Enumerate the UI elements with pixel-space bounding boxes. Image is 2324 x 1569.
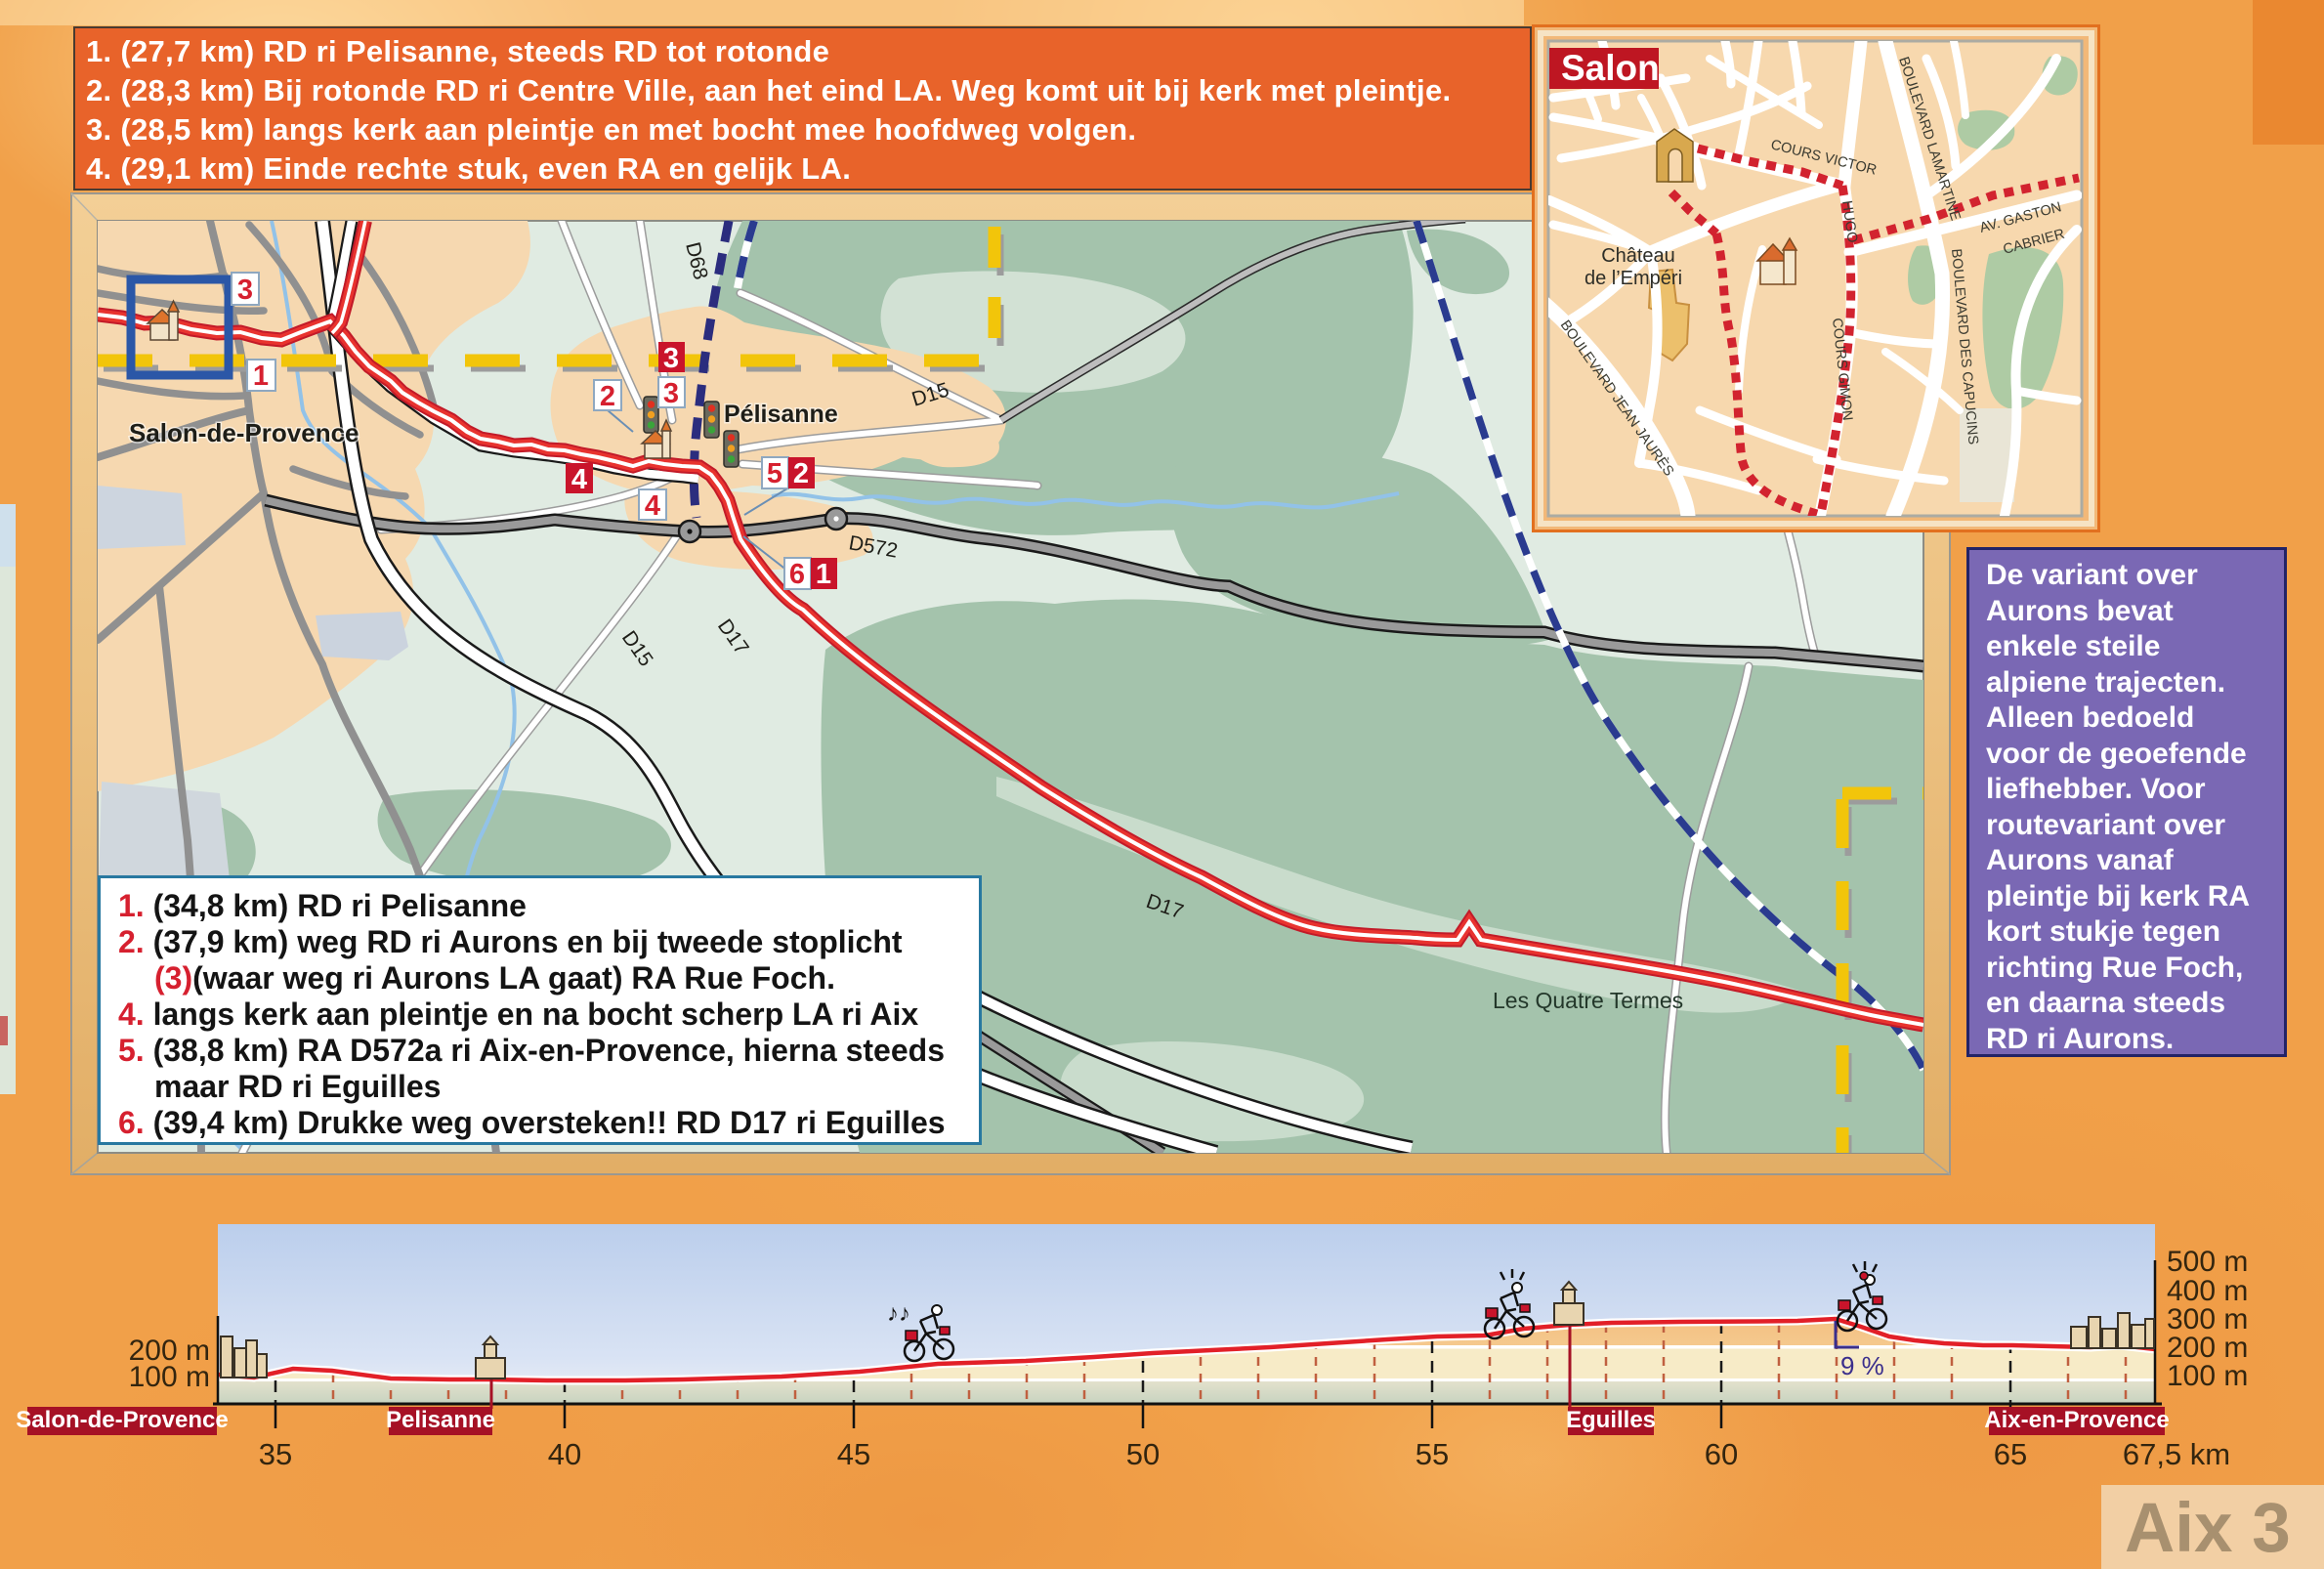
svg-text:de l’Empéri: de l’Empéri	[1585, 268, 1682, 289]
svg-text:Aix-en-Provence: Aix-en-Provence	[1984, 1407, 2169, 1433]
svg-text:Salon: Salon	[1561, 48, 1660, 88]
svg-text:500 m: 500 m	[2167, 1246, 2248, 1278]
svg-text:Salon-de-Provence: Salon-de-Provence	[16, 1407, 228, 1433]
svg-text:45: 45	[837, 1437, 870, 1471]
svg-text:67,5 km: 67,5 km	[2123, 1437, 2230, 1471]
svg-text:50: 50	[1126, 1437, 1160, 1471]
svg-text:40: 40	[548, 1437, 581, 1471]
svg-text:♪♪: ♪♪	[887, 1300, 910, 1327]
svg-text:1: 1	[816, 559, 831, 590]
svg-text:5: 5	[767, 458, 782, 489]
svg-text:9 %: 9 %	[1840, 1351, 1884, 1380]
svg-text:Pélisanne: Pélisanne	[724, 401, 838, 428]
svg-text:3: 3	[663, 378, 679, 409]
svg-text:4: 4	[645, 490, 660, 522]
svg-text:35: 35	[259, 1437, 292, 1471]
svg-text:1: 1	[253, 360, 269, 392]
svg-text:Eguilles: Eguilles	[1566, 1407, 1656, 1433]
svg-text:Château: Château	[1601, 245, 1675, 267]
svg-text:60: 60	[1705, 1437, 1738, 1471]
svg-text:Salon-de-Provence: Salon-de-Provence	[129, 418, 359, 447]
svg-text:2: 2	[600, 381, 615, 412]
svg-text:100 m: 100 m	[2167, 1360, 2248, 1392]
svg-text:65: 65	[1994, 1437, 2027, 1471]
svg-text:Pelisanne: Pelisanne	[386, 1407, 495, 1433]
svg-text:100 m: 100 m	[129, 1361, 210, 1393]
svg-text:55: 55	[1416, 1437, 1449, 1471]
svg-text:4: 4	[571, 464, 587, 495]
svg-text:3: 3	[663, 343, 679, 374]
svg-text:3: 3	[237, 275, 253, 306]
svg-text:2: 2	[793, 458, 809, 489]
svg-text:Les Quatre Termes: Les Quatre Termes	[1493, 988, 1683, 1013]
svg-text:6: 6	[789, 559, 805, 590]
